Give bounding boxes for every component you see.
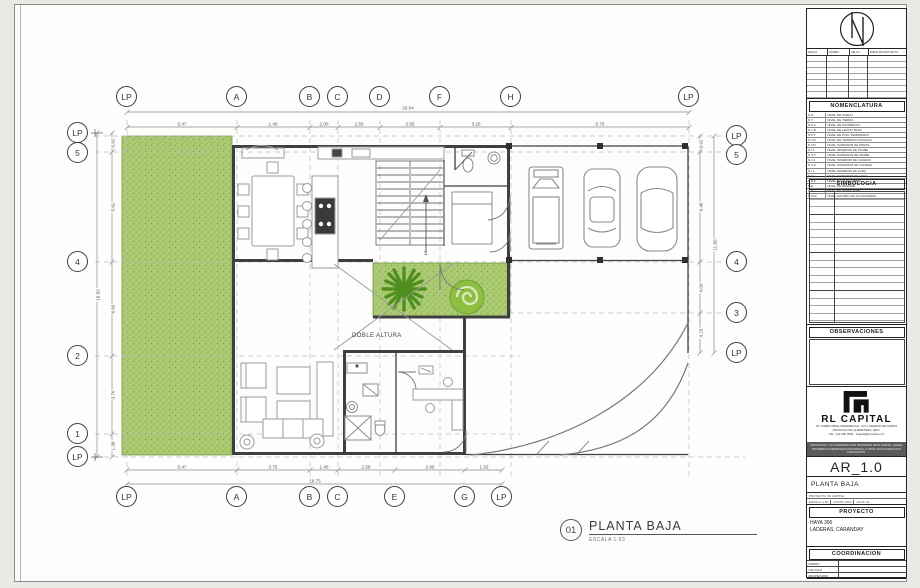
sheet-code-box: AR_1.0	[807, 457, 906, 477]
grid-bubble-top-f: F	[429, 86, 450, 107]
dim-bottom-6: 1.93	[479, 465, 490, 470]
rev-col-cambio: CAMBIO	[828, 49, 850, 55]
nomenclatura-desc: NIVEL DE TIERRA	[826, 118, 906, 122]
firm-brand-section: RL CAPITAL AV. CAMPO REAL RESIDENCIAL, I…	[807, 387, 906, 457]
grid-bubble-top-lp: LP	[116, 86, 137, 107]
revision-table-header: FECHA CAMBIO SELLO FIRMA DE PROYECTO	[807, 49, 906, 56]
nomenclatura-section: NOMENCLATURA N.N. NIVEL DE SUELO N.T. NI…	[807, 99, 906, 177]
vehicle-car-icon	[637, 167, 677, 251]
rl-capital-logo-icon	[842, 389, 872, 413]
firm-logo-box	[807, 9, 906, 49]
simbologia-rows	[809, 191, 905, 323]
nomenclatura-code: N.I.T.	[807, 148, 826, 152]
observaciones-section: OBSERVACIONES	[807, 325, 906, 387]
sheet-meta: PROYECTO: RL CAPITAL ESCALA: 1:93 COTAS:…	[807, 493, 906, 505]
copyright-strip: ESTE PLANO Y SU CONTENIDO SON PROPIEDAD …	[807, 442, 906, 456]
dim-bottom-4: 2.58	[361, 465, 372, 470]
revision-table: FECHA CAMBIO SELLO FIRMA DE PROYECTO	[807, 49, 906, 99]
grid-bubble-bottom-c: C	[327, 486, 348, 507]
nomenclatura-code: N.I.L.	[807, 169, 826, 173]
grid-bubble-bottom-g: G	[454, 486, 475, 507]
nomenclatura-desc: NIVEL INFERIOR DE LOSA	[826, 169, 906, 173]
nomenclatura-code: N.P.T.	[807, 133, 826, 137]
sheet-code: AR_1.0	[830, 459, 883, 475]
dim-top-7: 5.75	[595, 122, 606, 127]
dim-top-total: 20.04	[401, 106, 415, 111]
grid-bubble-left-4: 4	[67, 251, 88, 272]
dim-left-4: 3.70	[111, 390, 116, 401]
nomenclatura-desc: NIVEL SUPERIOR DE PRETIL	[826, 143, 906, 147]
n-monogram-icon	[809, 11, 905, 47]
nomenclatura-code: N.T.P.	[807, 143, 826, 147]
dim-top-2: 1.40	[268, 122, 279, 127]
plan-scale: ESCALA 1:93	[589, 537, 757, 543]
proyecto-line-1: HAYA 396	[810, 520, 903, 527]
dim-top-1: 5.47	[177, 122, 188, 127]
dim-right-total: 11.80	[713, 238, 718, 251]
grid-bubble-left-lp: LP	[67, 122, 88, 143]
lower-bathroom-fixtures	[345, 363, 385, 440]
grid-bubble-top-h: H	[500, 86, 521, 107]
nomenclatura-desc: NIVEL SUPERIOR DE CADENA	[826, 163, 906, 167]
nomenclatura-desc: NIVEL DE SUELO	[826, 113, 906, 117]
grid-bubble-left-5: 5	[67, 142, 88, 163]
proyecto-section: PROYECTO HAYA 396 LADERAS, CARANDAY	[807, 505, 906, 547]
rev-col-sello: SELLO	[850, 49, 869, 55]
grid-bubble-bottom-lp: LP	[116, 486, 137, 507]
dim-right-1: 0.92	[699, 139, 704, 150]
plant-round-icon	[450, 280, 484, 314]
plan-title: PLANTA BAJA	[589, 519, 757, 535]
nomenclatura-code: N.T.	[807, 118, 826, 122]
nomenclatura-code: N.T.N.	[807, 138, 826, 142]
driveway-curves	[471, 323, 688, 455]
dim-left-total: 18.50	[96, 288, 101, 302]
grid-bubble-right-3: 3	[726, 302, 747, 323]
dim-bottom-total: 19.75	[308, 479, 322, 484]
bath-bedroom-fixtures	[452, 150, 500, 244]
grid-bubble-top-lp2: LP	[678, 86, 699, 107]
observaciones-title: OBSERVACIONES	[809, 327, 905, 338]
grid-bubble-bottom-b: B	[299, 486, 320, 507]
nomenclatura-code: N.P.A.	[807, 123, 826, 127]
nomenclatura-code: N.N.	[807, 113, 826, 117]
nomenclatura-desc: NIVEL INFERIOR DE CADENA	[826, 158, 906, 162]
proyecto-name: HAYA 396 LADERAS, CARANDAY	[807, 519, 906, 535]
grid-bubble-right-lp: LP	[726, 125, 747, 146]
rev-col-fecha: FECHA	[807, 49, 828, 55]
dim-bottom-3: 1.40	[319, 465, 330, 470]
grid-bubble-right-lp2: LP	[726, 342, 747, 363]
nomenclatura-desc: NIVEL DE LECHO BAJO	[826, 128, 906, 132]
grid-bubble-bottom-e: E	[384, 486, 405, 507]
simbologia-section: SIMBOLOGIA	[807, 177, 906, 325]
grid-bubble-right-4: 4	[726, 251, 747, 272]
dim-top-3: 2.00	[319, 122, 330, 127]
vehicle-suv-icon	[584, 169, 620, 247]
dim-left-1: 0.92	[111, 138, 116, 149]
dim-right-2: 9.46	[699, 202, 704, 213]
dim-left-2: 5.62	[111, 202, 116, 213]
dim-top-5: 2.55	[405, 122, 416, 127]
revision-table-rows	[807, 56, 906, 98]
proyecto-line-2: LADERAS, CARANDAY	[810, 527, 903, 534]
nomenclatura-desc: NIVEL SUPERIOR DE TRABE	[826, 153, 906, 157]
coordinacion-title: COORDINACION	[809, 549, 905, 560]
dim-right-4: 4.23	[699, 328, 704, 339]
meta-row-2: ESCALA: 1:93 COTAS: MTS HOJA: 01	[807, 499, 906, 504]
stairs-label: S	[424, 251, 427, 257]
dim-left-5: 1.38	[111, 441, 116, 452]
plant-spiky-icon	[383, 268, 425, 310]
grid-bubble-top-d: D	[369, 86, 390, 107]
kitchen-dining-furniture	[238, 146, 444, 269]
meta-hoja: HOJA: 01	[854, 500, 871, 504]
plan-number-bubble: 01	[560, 519, 582, 541]
grid-bubble-bottom-a: A	[226, 486, 247, 507]
nomenclatura-title: NOMENCLATURA	[809, 101, 905, 112]
dim-left-3: 6.60	[111, 304, 116, 315]
plan-caption: 01 PLANTA BAJA ESCALA 1:93	[560, 519, 757, 543]
grid-bubble-left-2: 2	[67, 345, 88, 366]
dim-right-3: 4.00	[699, 283, 704, 294]
nomenclatura-code: N.S.C.	[807, 163, 826, 167]
sheet-title: PLANTA BAJA	[811, 481, 859, 488]
nomenclatura-desc: NIVEL DE TERRENO NATURAL	[826, 138, 906, 142]
observaciones-box	[809, 339, 905, 385]
proyecto-title: PROYECTO	[809, 507, 905, 518]
vehicle-pickup-icon	[529, 167, 563, 249]
title-block: FECHA CAMBIO SELLO FIRMA DE PROYECTO NOM…	[806, 8, 907, 578]
dim-top-4: 2.50	[354, 122, 365, 127]
nomenclatura-code: N.I.C.	[807, 158, 826, 162]
stairs	[376, 161, 444, 252]
living-room-furniture	[240, 362, 333, 449]
coordinacion-section: COORDINACION DISEÑO CALCULO PROPIETARIO	[807, 547, 906, 579]
grid-bubble-bottom-lp2: LP	[491, 486, 512, 507]
meta-cotas: COTAS: MTS	[831, 500, 854, 504]
dim-bottom-1: 5.47	[177, 465, 188, 470]
grid-bubble-top-c: C	[327, 86, 348, 107]
meta-escala: ESCALA: 1:93	[807, 500, 831, 504]
nomenclatura-desc: NIVEL DE PISO TERMINADO	[826, 133, 906, 137]
nomenclatura-code: N.L.B.	[807, 128, 826, 132]
grid-bubble-left-1: 1	[67, 423, 88, 444]
drawing-sheet-page: { "sheet": { "plan_number": "01", "plan_…	[0, 0, 920, 588]
coordinacion-row-propietario: PROPIETARIO	[807, 572, 906, 578]
nomenclatura-desc: NIVEL DE PAVIMENTO	[826, 123, 906, 127]
study-furniture	[413, 366, 463, 430]
grid-bubble-left-lp2: LP	[67, 446, 88, 467]
coordinacion-label: PROPIETARIO	[807, 573, 839, 578]
dim-bottom-2: 3.75	[268, 465, 279, 470]
grid-bubble-top-b: B	[299, 86, 320, 107]
rev-col-firma: FIRMA DE PROYECTO	[869, 49, 906, 55]
simbologia-title: SIMBOLOGIA	[809, 179, 905, 190]
grid-bubble-right-5: 5	[726, 144, 747, 165]
nomenclatura-code: N.S.T.	[807, 153, 826, 157]
nomenclatura-desc: NIVEL INFERIOR DE TRABE	[826, 148, 906, 152]
double-height-label: DOBLE ALTURA	[352, 333, 402, 339]
sheet-title-box: PLANTA BAJA	[807, 477, 906, 493]
brand-address-line-3: TEL. 442 000 0000 - rlcapital@contacto.m…	[829, 433, 885, 437]
dim-bottom-5: 2.95	[425, 465, 436, 470]
grid-bubble-top-a: A	[226, 86, 247, 107]
dim-top-6: 3.20	[471, 122, 482, 127]
